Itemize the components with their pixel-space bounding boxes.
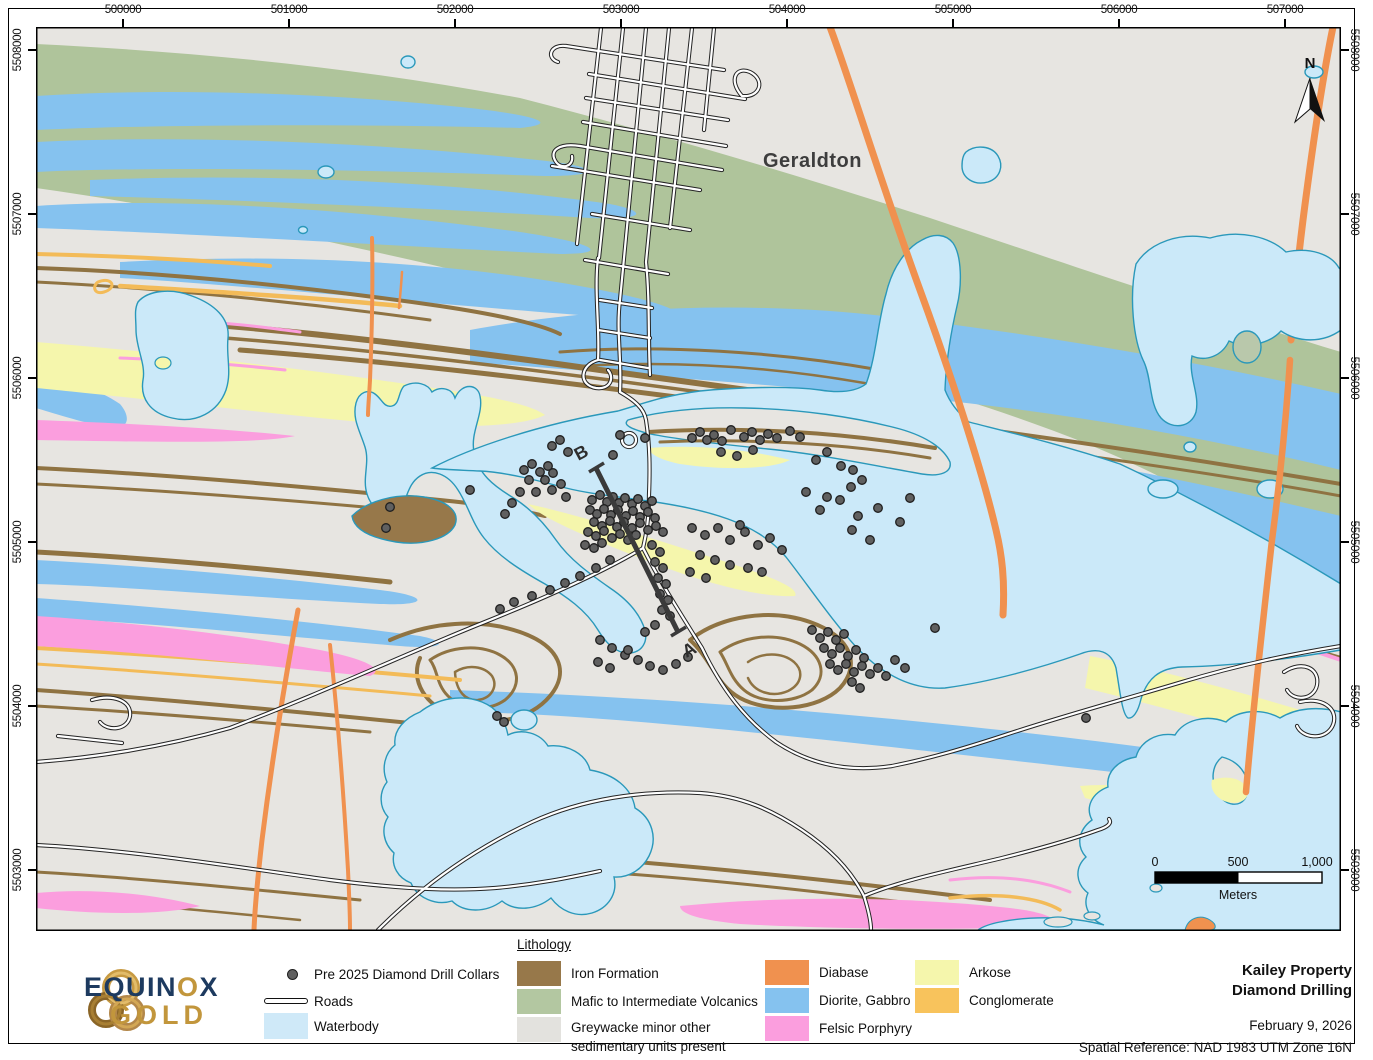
axis-tick: [1341, 705, 1349, 707]
spatial-reference: Spatial Reference: NAD 1983 UTM Zone 16N: [1079, 1040, 1352, 1055]
drill-collar: [548, 486, 557, 495]
drill-collar: [646, 662, 655, 671]
drill-collar: [606, 664, 615, 673]
drill-collar: [744, 564, 753, 573]
axis-label: 502000: [437, 4, 474, 16]
axis-tick: [28, 213, 36, 215]
drill-collar: [651, 621, 660, 630]
drill-collar: [834, 666, 843, 675]
drill-collar: [736, 521, 745, 530]
drill-collar: [858, 662, 867, 671]
roads-legend-label: Roads: [314, 994, 353, 1009]
drill-collar: [848, 678, 857, 687]
drill-collar: [854, 512, 863, 521]
drill-collar: [592, 532, 601, 541]
drill-collar: [493, 712, 502, 721]
drill-collar: [500, 718, 509, 727]
drill-collar: [581, 541, 590, 550]
drill-collar: [386, 503, 395, 512]
drill-collar: [823, 493, 832, 502]
drill-collar: [796, 433, 805, 442]
drill-collar: [598, 539, 607, 548]
drill-collar: [528, 460, 537, 469]
drill-collar: [858, 476, 867, 485]
axis-tick: [1284, 19, 1286, 27]
map-canvas: B A Geraldton N 0 500 1,000 Meters: [36, 27, 1341, 931]
drill-collar-legend-label: Pre 2025 Diamond Drill Collars: [314, 967, 499, 982]
drill-collar: [882, 672, 891, 681]
drill-collar: [758, 568, 767, 577]
drill-collar: [778, 546, 787, 555]
drill-collar: [766, 534, 775, 543]
axis-tick: [28, 705, 36, 707]
drill-collar: [874, 664, 883, 673]
drill-collar: [528, 592, 537, 601]
drill-collar: [596, 636, 605, 645]
drill-collar: [594, 658, 603, 667]
drill-collar: [823, 448, 832, 457]
axis-label: 5504000: [12, 685, 24, 728]
drill-collar: [651, 514, 660, 523]
drill-collar: [651, 558, 660, 567]
drill-collar: [856, 684, 865, 693]
drill-collar: [536, 468, 545, 477]
drill-collar: [501, 510, 510, 519]
drill-collar: [592, 564, 601, 573]
felsic-porphyry-label: Felsic Porphyry: [819, 1021, 912, 1036]
axis-label: 5507000: [12, 193, 24, 236]
diabase-label: Diabase: [819, 965, 869, 980]
drill-collar: [931, 624, 940, 633]
drill-collar: [866, 536, 875, 545]
arkose-island: [155, 357, 171, 369]
drill-collar: [840, 630, 849, 639]
map-title-line2: Diamond Drilling: [1232, 982, 1352, 999]
drill-collar: [874, 504, 883, 513]
drill-collar: [621, 494, 630, 503]
iron-formation-label: Iron Formation: [571, 966, 659, 981]
drill-collar: [726, 561, 735, 570]
drill-collar: [702, 574, 711, 583]
drill-collar: [600, 505, 609, 514]
axis-tick: [28, 541, 36, 543]
drill-collar: [837, 462, 846, 471]
axis-tick: [1118, 19, 1120, 27]
drill-collar: [561, 579, 570, 588]
axis-label: 503000: [603, 4, 640, 16]
iron-formation-swatch: [517, 961, 561, 986]
axis-label: 5506000: [12, 357, 24, 400]
waterbody-swatch: [264, 1013, 308, 1039]
axis-tick: [122, 19, 124, 27]
town-label: Geraldton: [763, 150, 862, 172]
lithology-title: Lithology: [517, 937, 571, 952]
drill-collar: [802, 488, 811, 497]
drill-collar: [556, 436, 565, 445]
drill-collar: [808, 626, 817, 635]
drill-collar: [1082, 714, 1091, 723]
pond: [299, 227, 308, 234]
pond: [962, 147, 1001, 183]
logo-text-gold: GOLD: [110, 1000, 208, 1031]
drill-collar: [520, 466, 529, 475]
map-date: February 9, 2026: [1249, 1018, 1352, 1033]
scalebar-island: [1150, 884, 1162, 892]
drill-collar: [764, 430, 773, 439]
axis-label: 501000: [271, 4, 308, 16]
drill-collar: [718, 437, 727, 446]
waterbody-legend-label: Waterbody: [314, 1019, 379, 1034]
drill-collar: [816, 634, 825, 643]
axis-tick: [1341, 377, 1349, 379]
drill-collar-symbol: [287, 969, 298, 980]
drill-collar: [659, 564, 668, 573]
drill-collar: [659, 666, 668, 675]
drill-collar: [644, 526, 653, 535]
axis-label: 5506000: [1348, 357, 1360, 400]
axis-tick: [786, 19, 788, 27]
axis-label: 507000: [1267, 4, 1304, 16]
pond: [511, 710, 537, 730]
volcanics-swatch: [517, 989, 561, 1014]
axis-tick: [1341, 49, 1349, 51]
drill-collar: [608, 644, 617, 653]
drill-collar: [648, 497, 657, 506]
axis-tick: [952, 19, 954, 27]
drill-collar: [844, 652, 853, 661]
drill-collar: [906, 494, 915, 503]
small-island: [1044, 917, 1072, 927]
drill-collar: [382, 524, 391, 533]
axis-tick: [1341, 869, 1349, 871]
drill-collar: [740, 433, 749, 442]
greywacke-label: Greywacke minor other sedimentary units …: [571, 1019, 771, 1057]
drill-collar: [820, 644, 829, 653]
volcanics-label: Mafic to Intermediate Volcanics: [571, 994, 758, 1009]
drill-collar: [644, 508, 653, 517]
svg-text:0: 0: [1152, 855, 1159, 869]
page: { "axes": { "top": ["500000","501000","5…: [0, 0, 1373, 1060]
axis-label: 5504000: [1348, 685, 1360, 728]
drill-collar: [701, 531, 710, 540]
drill-collar: [588, 496, 597, 505]
svg-text:500: 500: [1228, 855, 1249, 869]
drill-collar: [828, 650, 837, 659]
drill-collar: [672, 660, 681, 669]
drill-collar: [656, 548, 665, 557]
drill-collar: [466, 486, 475, 495]
drill-collar: [596, 491, 605, 500]
drill-collar: [510, 598, 519, 607]
axis-label: 5503000: [1348, 849, 1360, 892]
drill-collar: [516, 488, 525, 497]
drill-collar: [748, 428, 757, 437]
drill-collar: [641, 434, 650, 443]
conglomerate-swatch: [915, 988, 959, 1013]
drill-collar: [836, 496, 845, 505]
greywacke-swatch: [517, 1017, 561, 1042]
svg-text:1,000: 1,000: [1301, 855, 1332, 869]
drill-collar: [816, 506, 825, 515]
map-title-line1: Kailey Property: [1242, 962, 1352, 979]
lake-island: [1233, 331, 1261, 363]
drill-collar: [662, 580, 671, 589]
diorite-gabbro-label: Diorite, Gabbro: [819, 993, 911, 1008]
drill-collar: [541, 476, 550, 485]
drill-collar: [726, 536, 735, 545]
drill-collar: [852, 646, 861, 655]
axis-tick: [28, 49, 36, 51]
drill-collar: [717, 448, 726, 457]
drill-collar: [634, 495, 643, 504]
diabase-swatch: [765, 960, 809, 985]
drill-collar: [546, 586, 555, 595]
drill-collar: [641, 628, 650, 637]
logo-text-equinox: EQUINOX: [84, 972, 219, 1003]
diorite-gabbro-swatch: [765, 988, 809, 1013]
drill-collar: [659, 528, 668, 537]
drill-collar: [606, 556, 615, 565]
drill-collar: [549, 469, 558, 478]
geology-map: B A Geraldton N 0 500 1,000 Meters: [36, 27, 1341, 931]
arkose-swatch: [915, 960, 959, 985]
scale-unit: Meters: [1219, 888, 1257, 902]
drill-collar: [756, 436, 765, 445]
drill-collar: [850, 668, 859, 677]
drill-collar: [786, 427, 795, 436]
drill-collar: [696, 551, 705, 560]
drill-collar: [609, 451, 618, 460]
arkose-label: Arkose: [969, 965, 1011, 980]
drill-collar: [860, 654, 869, 663]
drill-collar: [847, 483, 856, 492]
axis-tick: [1341, 541, 1349, 543]
axis-tick: [454, 19, 456, 27]
drill-collar: [754, 541, 763, 550]
pond: [318, 166, 334, 178]
upper-left-lake: [136, 291, 229, 419]
drill-collar: [832, 636, 841, 645]
drill-collar: [608, 534, 617, 543]
drill-collar: [636, 519, 645, 528]
pond: [1148, 480, 1178, 498]
drill-collar: [686, 568, 695, 577]
drill-collar: [836, 644, 845, 653]
axis-label: 5508000: [12, 29, 24, 72]
drill-collar: [590, 544, 599, 553]
drill-collar: [812, 456, 821, 465]
drill-collar: [496, 605, 505, 614]
axis-tick: [288, 19, 290, 27]
drill-collar: [896, 518, 905, 527]
drill-collar: [848, 526, 857, 535]
drill-collar: [688, 434, 697, 443]
drill-collar: [616, 431, 625, 440]
drill-collar: [842, 660, 851, 669]
small-island: [1084, 912, 1100, 920]
north-label: N: [1305, 55, 1316, 72]
drill-collar: [629, 507, 638, 516]
drill-collar: [557, 480, 566, 489]
drill-collar: [901, 664, 910, 673]
axis-label: 5507000: [1348, 193, 1360, 236]
drill-collar: [562, 493, 571, 502]
drill-collar: [849, 466, 858, 475]
drill-collar: [688, 524, 697, 533]
drill-collar: [652, 522, 661, 531]
axis-tick: [28, 869, 36, 871]
conglomerate-label: Conglomerate: [969, 993, 1054, 1008]
drill-collar: [616, 530, 625, 539]
drill-collar: [590, 518, 599, 527]
drill-collar: [714, 524, 723, 533]
drill-collar: [711, 556, 720, 565]
drill-collar: [733, 452, 742, 461]
pond: [401, 56, 415, 68]
axis-label: 504000: [769, 4, 806, 16]
roads-symbol: [264, 998, 308, 1004]
drill-collar: [548, 442, 557, 451]
drill-collar: [648, 541, 657, 550]
axis-label: 5508000: [1348, 29, 1360, 72]
axis-tick: [620, 19, 622, 27]
drill-collar: [600, 527, 609, 536]
drill-collar: [624, 646, 633, 655]
drill-collar: [584, 528, 593, 537]
axis-label: 5505000: [12, 521, 24, 564]
drill-collar: [749, 446, 758, 455]
drill-collar: [824, 628, 833, 637]
drill-collar: [606, 517, 615, 526]
drill-collar: [826, 660, 835, 669]
drill-collar: [710, 431, 719, 440]
drill-collar: [532, 488, 541, 497]
drill-collar: [508, 499, 517, 508]
axis-label: 505000: [935, 4, 972, 16]
axis-tick: [1341, 213, 1349, 215]
drill-collar: [727, 426, 736, 435]
axis-label: 5505000: [1348, 521, 1360, 564]
drill-collar: [773, 434, 782, 443]
drill-collar: [891, 656, 900, 665]
drill-collar: [634, 656, 643, 665]
axis-label: 5503000: [12, 849, 24, 892]
axis-label: 500000: [105, 4, 142, 16]
drill-collar: [525, 476, 534, 485]
drill-collar: [696, 428, 705, 437]
pond: [1184, 442, 1196, 452]
axis-label: 506000: [1101, 4, 1138, 16]
drill-collar: [866, 670, 875, 679]
drill-collar: [576, 572, 585, 581]
felsic-porphyry-swatch: [765, 1016, 809, 1041]
axis-tick: [28, 377, 36, 379]
